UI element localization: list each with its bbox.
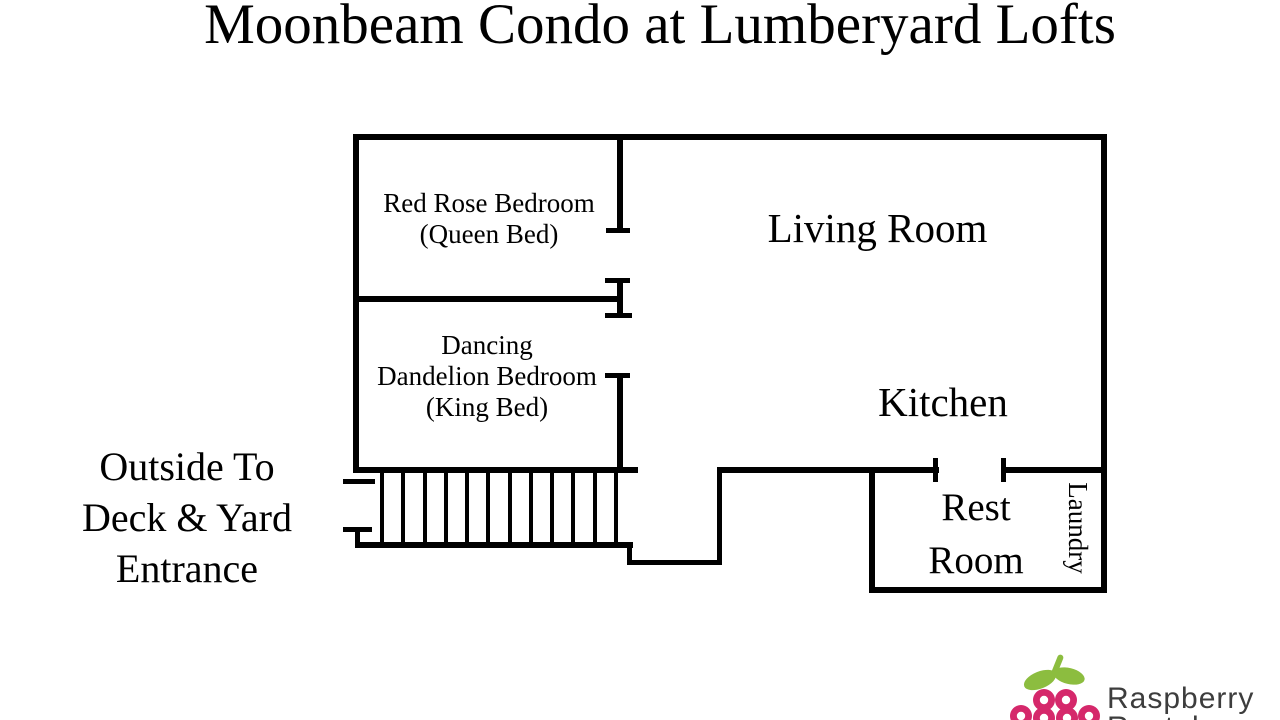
stair-tread [550,472,554,543]
outer-right-wall [1101,134,1107,593]
stair-tread [508,472,512,543]
page-title: Moonbeam Condo at Lumberyard Lofts [40,0,1280,56]
dancing-dandelion-line1: Dancing [358,330,616,361]
rest-room-label: Rest Room [876,481,1076,587]
stair-tread [423,472,427,543]
restroom-top-wall-left [869,467,939,473]
rest-room-line2: Room [876,534,1076,587]
hall-door-jamb-bottom-tick [605,313,632,318]
red-rose-bedroom-name: Red Rose Bedroom [358,188,620,219]
restroom-door-jamb-left [933,458,938,482]
entrance-lower-jamb-stub [355,529,360,547]
stair-tread [380,472,384,543]
red-rose-bedroom-bed: (Queen Bed) [358,219,620,250]
dancing-dandelion-line3: (King Bed) [358,392,616,423]
rest-room-line1: Rest [876,481,1076,534]
kitchen-label: Kitchen [760,379,1126,425]
laundry-label: Laundry [1063,478,1093,578]
floor-plan-page: Moonbeam Condo at Lumberyard Lofts Red R… [0,0,1280,720]
dandelion-right-wall [617,375,623,472]
stair-tread [571,472,575,543]
dancing-dandelion-bedroom-label: Dancing Dandelion Bedroom (King Bed) [358,330,616,423]
restroom-left-wall [869,467,875,593]
stair-tread [465,472,469,543]
landing-right-wall [717,467,722,565]
logo-brand-line2: Rentals [1107,711,1216,720]
stair-tread [444,472,448,543]
entrance-upper-jamb-tick [343,479,375,484]
outside-entrance-line1: Outside To [37,441,337,492]
outer-top-wall [353,134,1107,140]
stair-tread [529,472,533,543]
stairs-bottom-wall [355,542,633,548]
restroom-top-wall-right [1001,467,1107,473]
restroom-bottom-wall [869,587,1107,593]
stair-tread [614,472,618,543]
red-rose-bedroom-label: Red Rose Bedroom (Queen Bed) [358,188,620,250]
landing-bottom-wall [627,560,722,565]
red-rose-bottom-wall [353,296,620,302]
living-room-label: Living Room [660,205,1095,251]
outside-entrance-label: Outside To Deck & Yard Entrance [37,441,337,594]
stair-tread [486,472,490,543]
outside-entrance-line3: Entrance [37,543,337,594]
stair-tread [401,472,405,543]
stair-tread [593,472,597,543]
hall-door-jamb-top-tick [605,278,630,283]
raspberry-logo-icon [1005,650,1105,720]
kitchen-bottom-wall [717,467,874,473]
dancing-dandelion-line2: Dandelion Bedroom [358,361,616,392]
outside-entrance-line2: Deck & Yard [37,492,337,543]
